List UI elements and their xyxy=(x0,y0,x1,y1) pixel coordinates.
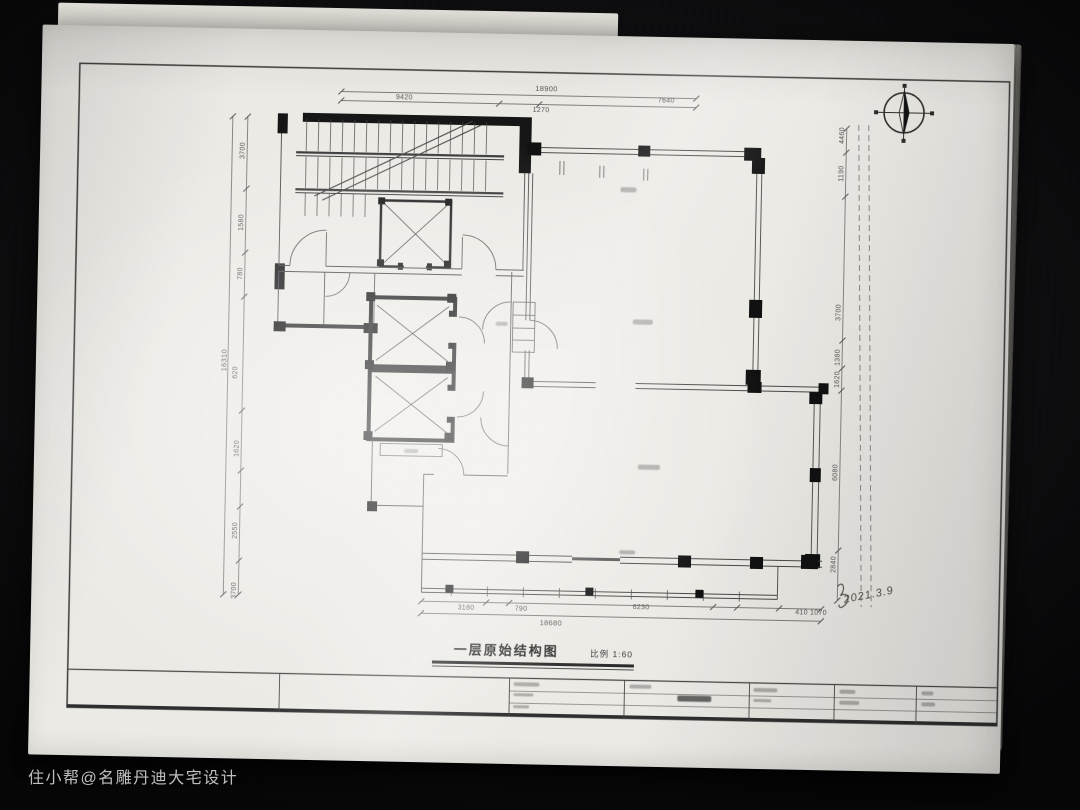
title-block-text-smudge xyxy=(513,705,529,708)
dim-top-seg: 7640 xyxy=(658,97,675,104)
title-block-text-smudge xyxy=(839,690,855,694)
title-block-text-smudge xyxy=(839,701,859,705)
title-block-text-smudge xyxy=(921,691,933,695)
room-label-smudge xyxy=(638,465,660,470)
title-block-text-smudge xyxy=(629,684,651,688)
title-block-text-smudge xyxy=(513,682,539,687)
dim-left-seg: 2550 xyxy=(232,522,239,539)
dim-top-seg: 9420 xyxy=(396,94,413,101)
room-label-smudge xyxy=(404,449,418,453)
dim-left-seg: 780 xyxy=(237,267,244,280)
room-label-smudge xyxy=(496,322,508,326)
dim-top-seg: 1270 xyxy=(533,107,550,114)
room-label-smudge xyxy=(619,550,635,554)
dim-right-seg: 2840 xyxy=(830,556,837,573)
elevator-upper xyxy=(377,197,452,270)
drawing-title: 一层原始结构图 xyxy=(428,638,584,660)
dim-right-seg: 1620 xyxy=(834,371,841,388)
room-lower-right xyxy=(421,384,825,603)
dim-top-overall: 18900 xyxy=(535,84,558,93)
title-block-text-smudge xyxy=(513,693,533,696)
title-block-text-smudge xyxy=(753,688,777,692)
drawing-frame xyxy=(67,63,1010,726)
elevator-pair xyxy=(363,292,485,457)
dim-right-seg: 1380 xyxy=(834,349,841,366)
photo-of-floor-plan: { "colors": { "desk_background": "#0b0b0… xyxy=(0,0,1080,810)
dim-left-seg: 1620 xyxy=(234,440,241,457)
dim-right-seg: 4460 xyxy=(839,127,846,144)
dim-bottom-seg: 790 xyxy=(515,606,528,613)
room-lower-left xyxy=(366,439,508,561)
corridor xyxy=(480,271,536,474)
dashed-boundary-line xyxy=(849,125,881,607)
watermark-text: 住小帮@名雕丹迪大宅设计 xyxy=(28,764,238,788)
drawing-scale-label: 比例 1:60 xyxy=(590,648,633,661)
dim-left-seg: 3700 xyxy=(240,142,247,159)
room-upper-right xyxy=(521,142,833,394)
dim-left-overall: 16310 xyxy=(219,349,228,372)
utility-rooms xyxy=(274,271,379,333)
dim-left-seg: 1580 xyxy=(238,214,245,231)
dim-right-seg: 3700 xyxy=(835,304,842,321)
dim-bottom-overall: 18680 xyxy=(539,618,562,627)
room-label-smudge xyxy=(633,319,653,324)
dim-left-seg: 620 xyxy=(232,366,239,379)
title-block-text-smudge xyxy=(921,702,935,706)
dim-left-seg: 3700 xyxy=(231,582,238,599)
title-block-signature-smudge xyxy=(677,695,711,702)
dim-right-seg: 1190 xyxy=(838,165,845,181)
dim-bottom-seg: 6230 xyxy=(633,604,650,611)
dim-right-seg: 6080 xyxy=(832,464,839,481)
dim-bottom-seg: 3180 xyxy=(458,604,475,611)
dim-bottom-seg: 410 1070 xyxy=(795,609,827,617)
blueprint-sheet: 18900 9420 1270 7640 3180 790 6230 410 1… xyxy=(28,25,1014,774)
room-label-smudge xyxy=(620,187,636,192)
title-block-text-smudge xyxy=(753,699,771,702)
north-arrow-icon xyxy=(873,83,934,143)
